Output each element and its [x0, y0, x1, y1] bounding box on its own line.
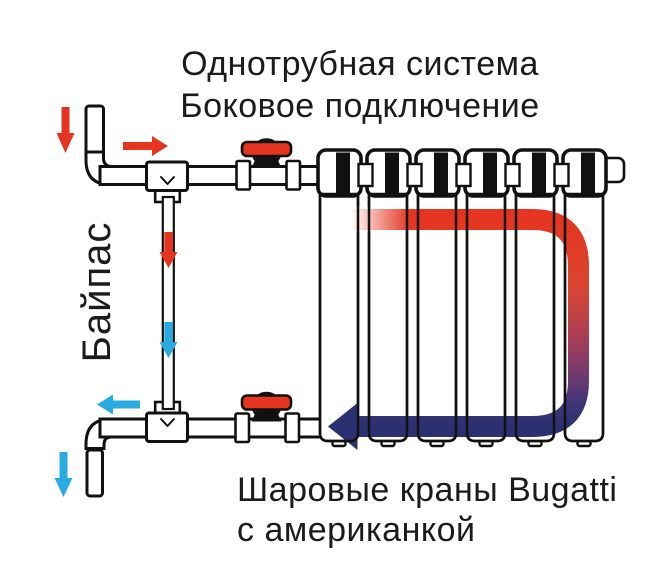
union-nut	[237, 161, 251, 190]
tee-body	[147, 162, 188, 191]
section-stripe	[385, 153, 399, 195]
caption-line2: с американкой	[237, 511, 476, 549]
union-nut	[286, 414, 300, 443]
bypass-pipe	[163, 197, 174, 409]
flow-fade-in	[336, 207, 410, 233]
section-stripe	[336, 153, 350, 195]
return-riser-pipe	[87, 450, 103, 496]
diagram-title-line1: Однотрубная система	[181, 45, 539, 83]
return-tee	[147, 413, 188, 442]
valve-handle-icon	[242, 396, 291, 410]
bypass-pipe-assembly	[155, 189, 180, 415]
section-stripe	[434, 153, 448, 195]
cold-outlet-down-arrow-icon	[55, 452, 73, 497]
section-nipple	[506, 164, 520, 186]
section-nipple	[457, 164, 471, 186]
diagram-title-line2: Боковое подключение	[180, 87, 539, 125]
section-nipple	[555, 164, 569, 186]
section-nipple	[359, 164, 373, 186]
diagram-svg: Однотрубная система Боковое подключение …	[0, 0, 670, 568]
hot-right-arrow-icon	[123, 136, 168, 156]
union-nut	[236, 414, 250, 443]
heating-scheme-diagram: Однотрубная система Боковое подключение …	[0, 0, 670, 568]
radiator	[318, 150, 624, 450]
union-nut	[287, 161, 301, 190]
bypass-label: Байпас	[75, 222, 119, 363]
supply-tee	[147, 162, 188, 191]
radiator-headers	[318, 150, 606, 196]
valve-handle-icon	[242, 142, 291, 156]
section-nipple	[408, 164, 422, 186]
hot-inlet-down-arrow-icon	[57, 107, 75, 153]
section-stripe	[532, 153, 546, 195]
section-stripe	[581, 153, 595, 195]
cold-left-arrow-icon	[97, 395, 140, 415]
caption-line1: Шаровые краны Bugatti	[237, 471, 617, 509]
tee-body	[147, 413, 188, 442]
section-stripe	[483, 153, 497, 195]
radiator-section	[418, 194, 456, 441]
supply-riser-pipe	[86, 106, 104, 154]
radiator-section	[467, 194, 505, 441]
